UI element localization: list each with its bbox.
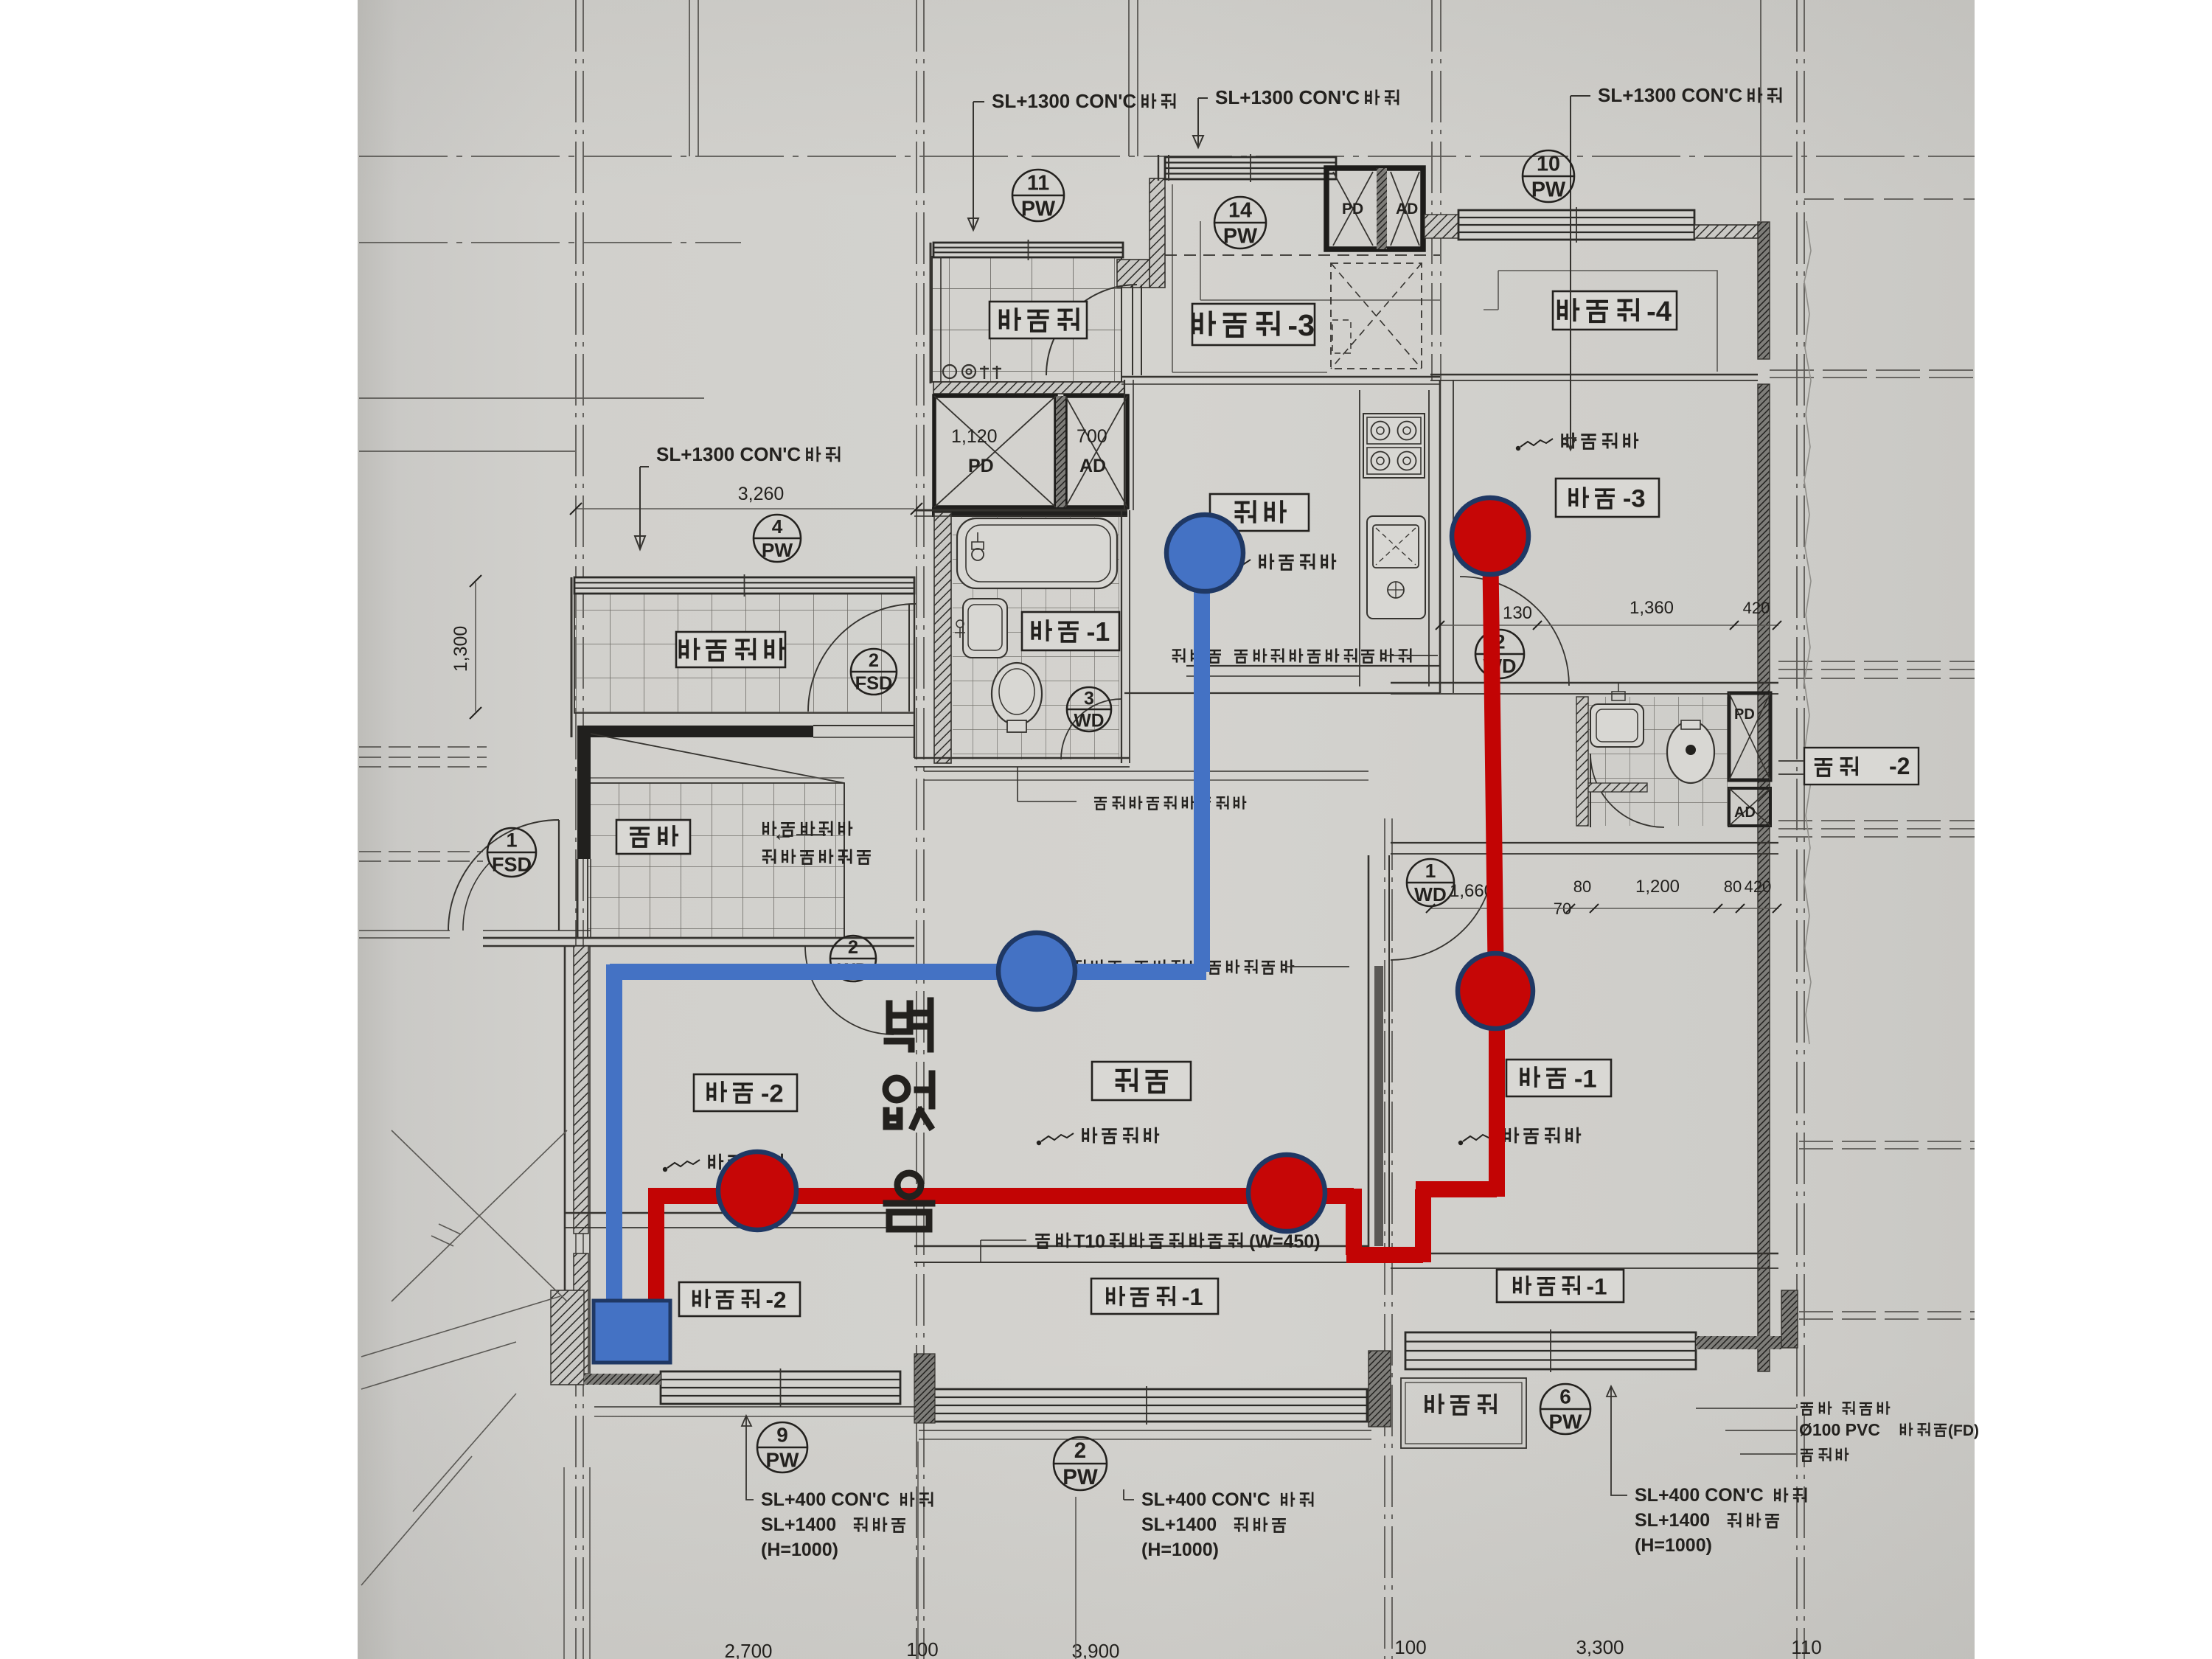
svg-text:3: 3: [1084, 689, 1094, 709]
svg-text:3,300: 3,300: [1576, 1636, 1624, 1658]
svg-text:1: 1: [1425, 860, 1436, 882]
svg-text:-4: -4: [1646, 296, 1672, 327]
svg-text:-1: -1: [1087, 617, 1110, 647]
svg-text:PW: PW: [1549, 1411, 1583, 1433]
svg-text:PW: PW: [1531, 178, 1566, 201]
svg-text:SL+1300 CON'C: SL+1300 CON'C: [1598, 84, 1742, 106]
svg-text:SL+1300 CON'C: SL+1300 CON'C: [992, 90, 1136, 112]
svg-text:1,200: 1,200: [1635, 877, 1680, 897]
svg-text:100: 100: [1394, 1636, 1426, 1658]
svg-text:6: 6: [1559, 1385, 1571, 1408]
svg-text:SL+1300 CON'C: SL+1300 CON'C: [1215, 86, 1360, 108]
svg-text:-3: -3: [1623, 485, 1646, 513]
svg-text:-2: -2: [765, 1286, 786, 1312]
svg-text:1,360: 1,360: [1630, 598, 1674, 618]
svg-text:PW: PW: [766, 1449, 800, 1472]
svg-text:SL+400 CON'C: SL+400 CON'C: [1141, 1489, 1270, 1510]
svg-text:PD: PD: [968, 456, 994, 476]
svg-text:SL+1400: SL+1400: [1635, 1510, 1710, 1531]
svg-text:PW: PW: [1062, 1465, 1098, 1489]
svg-text:1,120: 1,120: [951, 426, 998, 447]
svg-text:1: 1: [506, 829, 517, 852]
svg-text:SL+1400: SL+1400: [761, 1514, 836, 1535]
svg-text:T10: T10: [1074, 1231, 1105, 1252]
svg-text:1,300: 1,300: [451, 626, 471, 672]
svg-text:130: 130: [1503, 603, 1532, 623]
svg-text:-2: -2: [1889, 753, 1910, 779]
svg-text:2: 2: [848, 937, 858, 958]
svg-text:4: 4: [772, 515, 783, 538]
svg-text:(W=450): (W=450): [1249, 1231, 1321, 1252]
svg-text:2: 2: [1074, 1439, 1086, 1463]
svg-text:420: 420: [1743, 599, 1770, 617]
svg-text:SL+400 CON'C: SL+400 CON'C: [761, 1489, 890, 1510]
svg-text:PD: PD: [1734, 706, 1755, 723]
svg-text:-1: -1: [1586, 1273, 1607, 1299]
svg-text:(H=1000): (H=1000): [761, 1540, 838, 1560]
svg-text:-1: -1: [1182, 1284, 1203, 1310]
svg-text:PD: PD: [1342, 201, 1363, 218]
svg-text:100: 100: [906, 1638, 938, 1659]
svg-text:11: 11: [1027, 171, 1049, 195]
svg-text:PW: PW: [1223, 224, 1258, 248]
svg-text:AD: AD: [1396, 201, 1418, 218]
svg-text:SL+1300 CON'C: SL+1300 CON'C: [656, 443, 801, 465]
svg-text:PW: PW: [1021, 197, 1056, 220]
svg-text:3,260: 3,260: [738, 484, 785, 504]
svg-text:SL+1400: SL+1400: [1141, 1514, 1217, 1535]
svg-text:SL+400 CON'C: SL+400 CON'C: [1635, 1485, 1764, 1506]
svg-text:Ø100 PVC: Ø100 PVC: [1799, 1420, 1880, 1439]
svg-text:110: 110: [1791, 1636, 1821, 1658]
svg-text:3,900: 3,900: [1071, 1640, 1119, 1659]
svg-text:(H=1000): (H=1000): [1635, 1535, 1712, 1556]
svg-text:FSD: FSD: [855, 673, 893, 694]
svg-text:2: 2: [869, 650, 879, 671]
svg-text:(H=1000): (H=1000): [1141, 1540, 1219, 1560]
svg-text:AD: AD: [1734, 804, 1756, 821]
svg-text:9: 9: [776, 1424, 788, 1447]
svg-text:80: 80: [1724, 877, 1742, 896]
svg-text:WD: WD: [1414, 883, 1447, 905]
svg-text:FSD: FSD: [492, 854, 532, 876]
svg-text:10: 10: [1537, 152, 1560, 175]
svg-text:-1: -1: [1574, 1065, 1597, 1093]
svg-text:AD: AD: [1079, 456, 1106, 476]
svg-text:700: 700: [1077, 426, 1107, 447]
svg-text:-3: -3: [1287, 308, 1315, 342]
svg-text:420: 420: [1745, 877, 1772, 896]
svg-text:14: 14: [1228, 198, 1252, 222]
svg-text:2,700: 2,700: [724, 1640, 772, 1659]
svg-text:WD: WD: [1074, 711, 1105, 731]
svg-text:(FD): (FD): [1948, 1422, 1979, 1439]
svg-text:PW: PW: [762, 539, 793, 561]
svg-text:80: 80: [1573, 877, 1591, 896]
svg-text:-2: -2: [761, 1080, 784, 1108]
